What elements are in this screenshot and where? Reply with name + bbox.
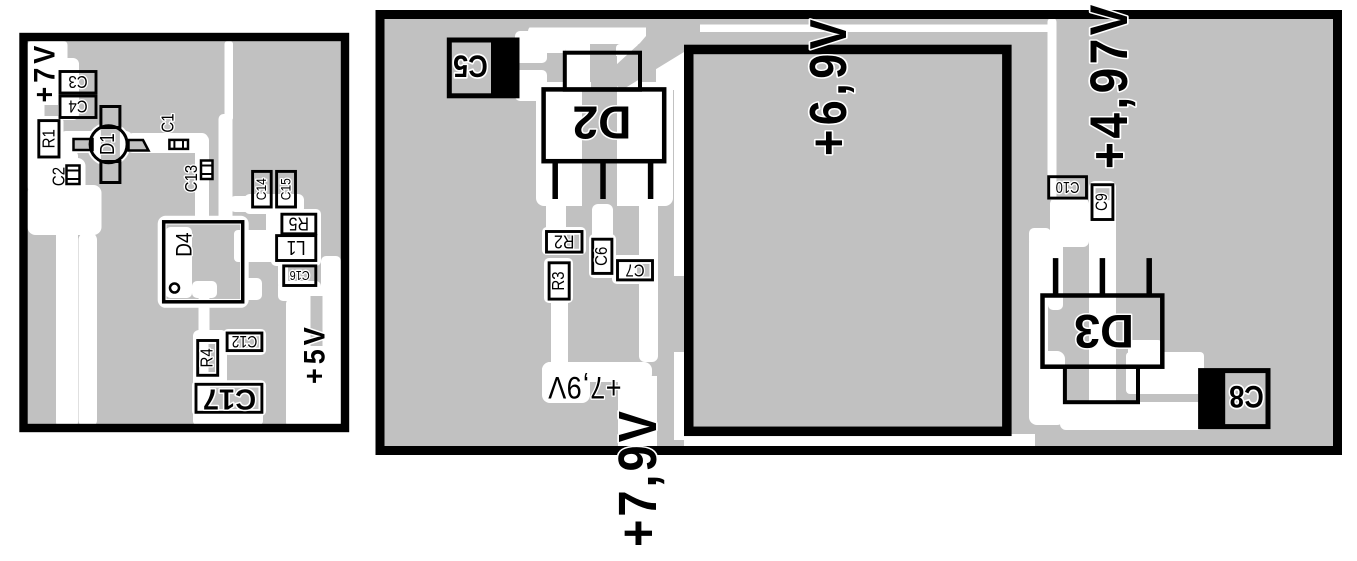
svg-text:D1: D1 [96,133,119,155]
svg-text:D2: D2 [573,97,632,149]
svg-text:R1: R1 [39,129,58,148]
svg-text:C7: C7 [625,260,644,279]
svg-text:C10: C10 [1056,178,1080,195]
svg-text:+7V: +7V [28,42,61,103]
svg-text:L1: L1 [287,237,306,260]
svg-text:D4: D4 [172,232,197,256]
svg-text:R3: R3 [549,271,568,290]
svg-text:C6: C6 [592,247,611,266]
svg-text:C12: C12 [232,332,258,350]
svg-text:C15: C15 [277,178,293,200]
svg-text:+4,97V: +4,97V [1080,1,1139,169]
svg-text:C17: C17 [203,383,256,415]
svg-text:+7,9V: +7,9V [548,369,622,405]
svg-text:C5: C5 [453,48,487,82]
svg-text:C13: C13 [182,165,201,193]
svg-text:D3: D3 [1074,305,1134,358]
svg-text:C1: C1 [158,113,177,132]
svg-text:C16: C16 [289,268,309,283]
svg-text:C3: C3 [68,71,87,90]
svg-text:+5V: +5V [299,323,332,384]
svg-text:R2: R2 [554,231,574,253]
svg-text:R4: R4 [197,348,216,367]
svg-text:R5: R5 [289,213,309,235]
svg-text:+7,9V: +7,9V [607,408,668,547]
svg-text:C8: C8 [1229,379,1263,413]
svg-text:C9: C9 [1093,193,1111,211]
svg-text:+6,9V: +6,9V [800,15,857,156]
svg-text:C4: C4 [68,96,87,115]
svg-text:C14: C14 [253,178,269,200]
